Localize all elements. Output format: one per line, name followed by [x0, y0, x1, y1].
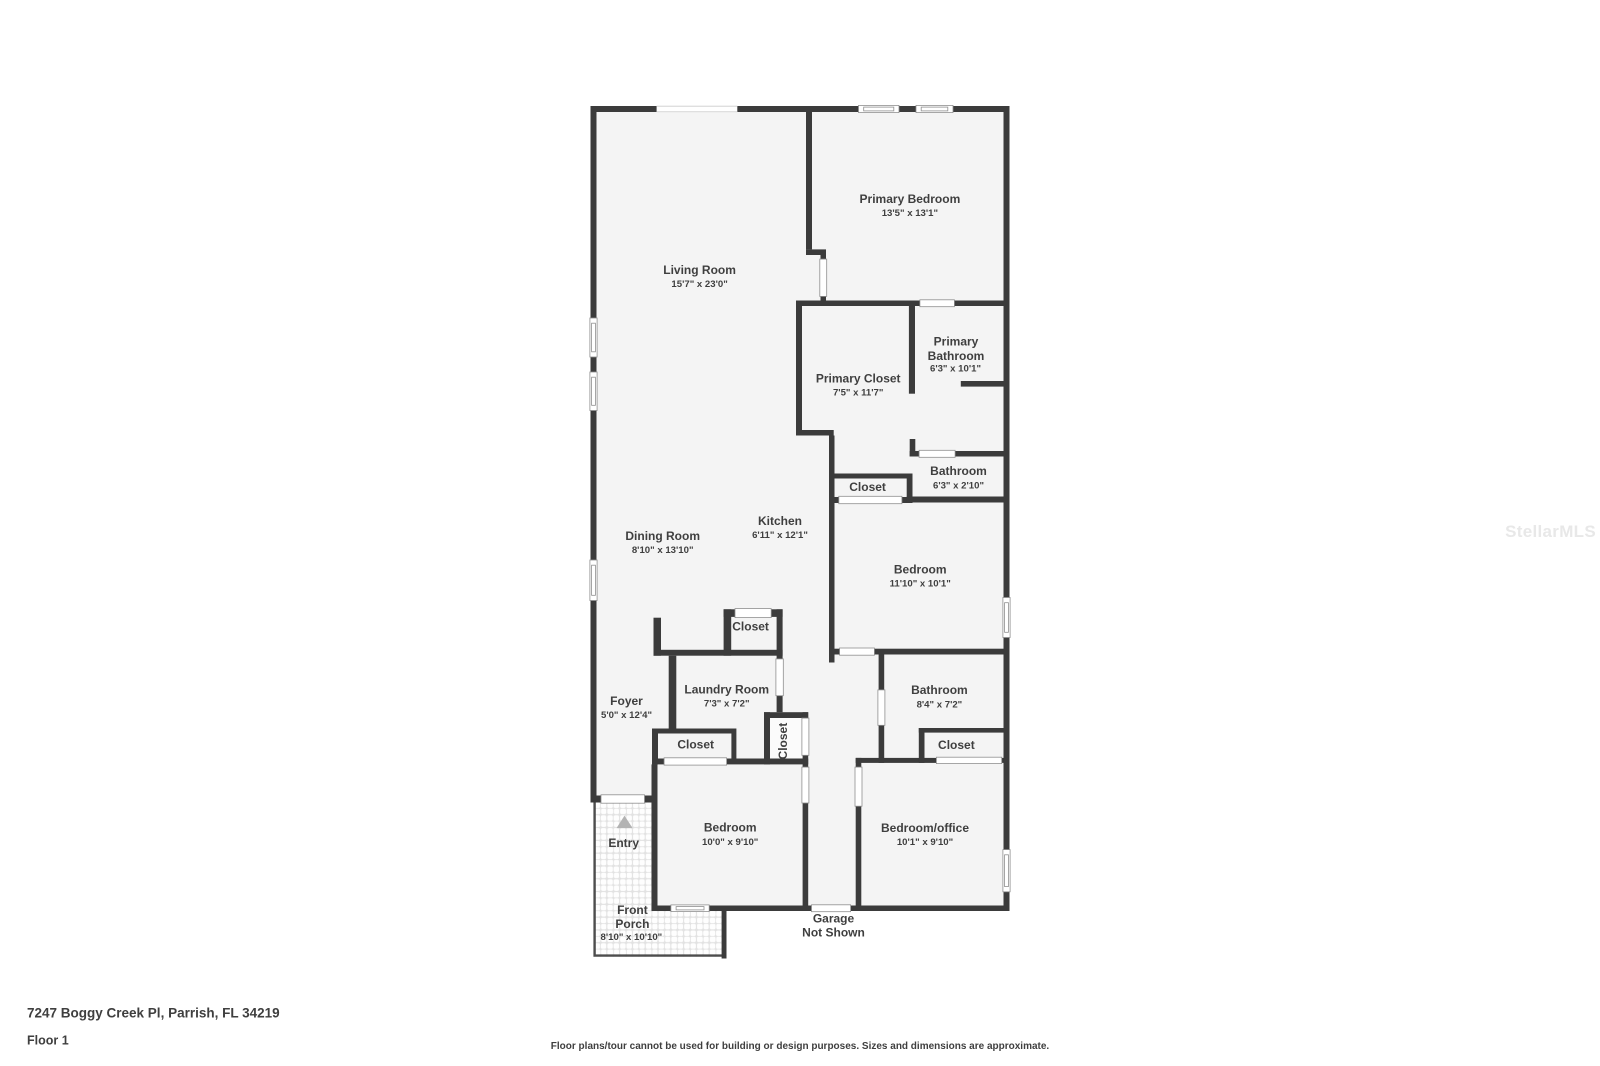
svg-text:Living Room: Living Room: [663, 263, 736, 277]
svg-text:7'5" x 11'7": 7'5" x 11'7": [833, 387, 883, 398]
svg-text:Kitchen: Kitchen: [758, 514, 802, 528]
svg-text:6'3" x 10'1": 6'3" x 10'1": [930, 364, 981, 375]
svg-text:Dining Room: Dining Room: [625, 529, 700, 543]
svg-text:Floor plans/tour cannot be use: Floor plans/tour cannot be used for buil…: [551, 1041, 1050, 1052]
svg-text:7247 Boggy Creek Pl, Parrish,: 7247 Boggy Creek Pl, Parrish, FL 34219: [27, 1006, 280, 1021]
svg-text:Bedroom: Bedroom: [704, 821, 757, 835]
svg-text:Primary Bedroom: Primary Bedroom: [860, 192, 961, 206]
svg-text:Floor 1: Floor 1: [27, 1034, 69, 1048]
svg-text:8'10" x 10'10": 8'10" x 10'10": [601, 932, 663, 943]
svg-text:10'0" x 9'10": 10'0" x 9'10": [702, 837, 758, 848]
svg-text:Garage: Garage: [813, 912, 855, 926]
svg-text:Laundry Room: Laundry Room: [684, 683, 769, 697]
svg-text:Primary: Primary: [934, 335, 979, 349]
svg-text:Not Shown: Not Shown: [802, 926, 865, 940]
svg-text:8'10" x 13'10": 8'10" x 13'10": [632, 545, 694, 556]
svg-text:5'0" x 12'4": 5'0" x 12'4": [601, 710, 652, 721]
svg-text:StellarMLS: StellarMLS: [1505, 522, 1596, 541]
svg-text:Closet: Closet: [776, 723, 790, 760]
svg-text:Bathroom: Bathroom: [928, 349, 985, 363]
svg-text:Closet: Closet: [938, 738, 975, 752]
svg-text:Bathroom: Bathroom: [930, 464, 987, 478]
svg-text:Foyer: Foyer: [610, 694, 643, 708]
svg-text:15'7" x 23'0": 15'7" x 23'0": [671, 279, 727, 290]
svg-text:Primary Closet: Primary Closet: [816, 371, 901, 385]
svg-text:13'5" x 13'1": 13'5" x 13'1": [882, 208, 938, 219]
svg-text:Closet: Closet: [849, 480, 886, 494]
svg-text:Bedroom: Bedroom: [894, 562, 947, 576]
svg-text:Bedroom/office: Bedroom/office: [881, 821, 969, 835]
svg-text:10'1" x 9'10": 10'1" x 9'10": [897, 837, 953, 848]
svg-text:Bathroom: Bathroom: [911, 683, 968, 697]
svg-text:6'11" x 12'1": 6'11" x 12'1": [752, 530, 808, 541]
svg-text:Entry: Entry: [608, 836, 639, 850]
svg-text:11'10" x 10'1": 11'10" x 10'1": [890, 578, 951, 589]
svg-text:8'4" x 7'2": 8'4" x 7'2": [917, 699, 963, 710]
svg-text:Porch: Porch: [615, 917, 649, 931]
svg-text:Closet: Closet: [677, 738, 714, 752]
svg-text:7'3" x 7'2": 7'3" x 7'2": [704, 699, 750, 710]
svg-text:Closet: Closet: [732, 620, 769, 634]
svg-text:Front: Front: [617, 903, 648, 917]
svg-text:6'3" x 2'10": 6'3" x 2'10": [933, 480, 984, 491]
